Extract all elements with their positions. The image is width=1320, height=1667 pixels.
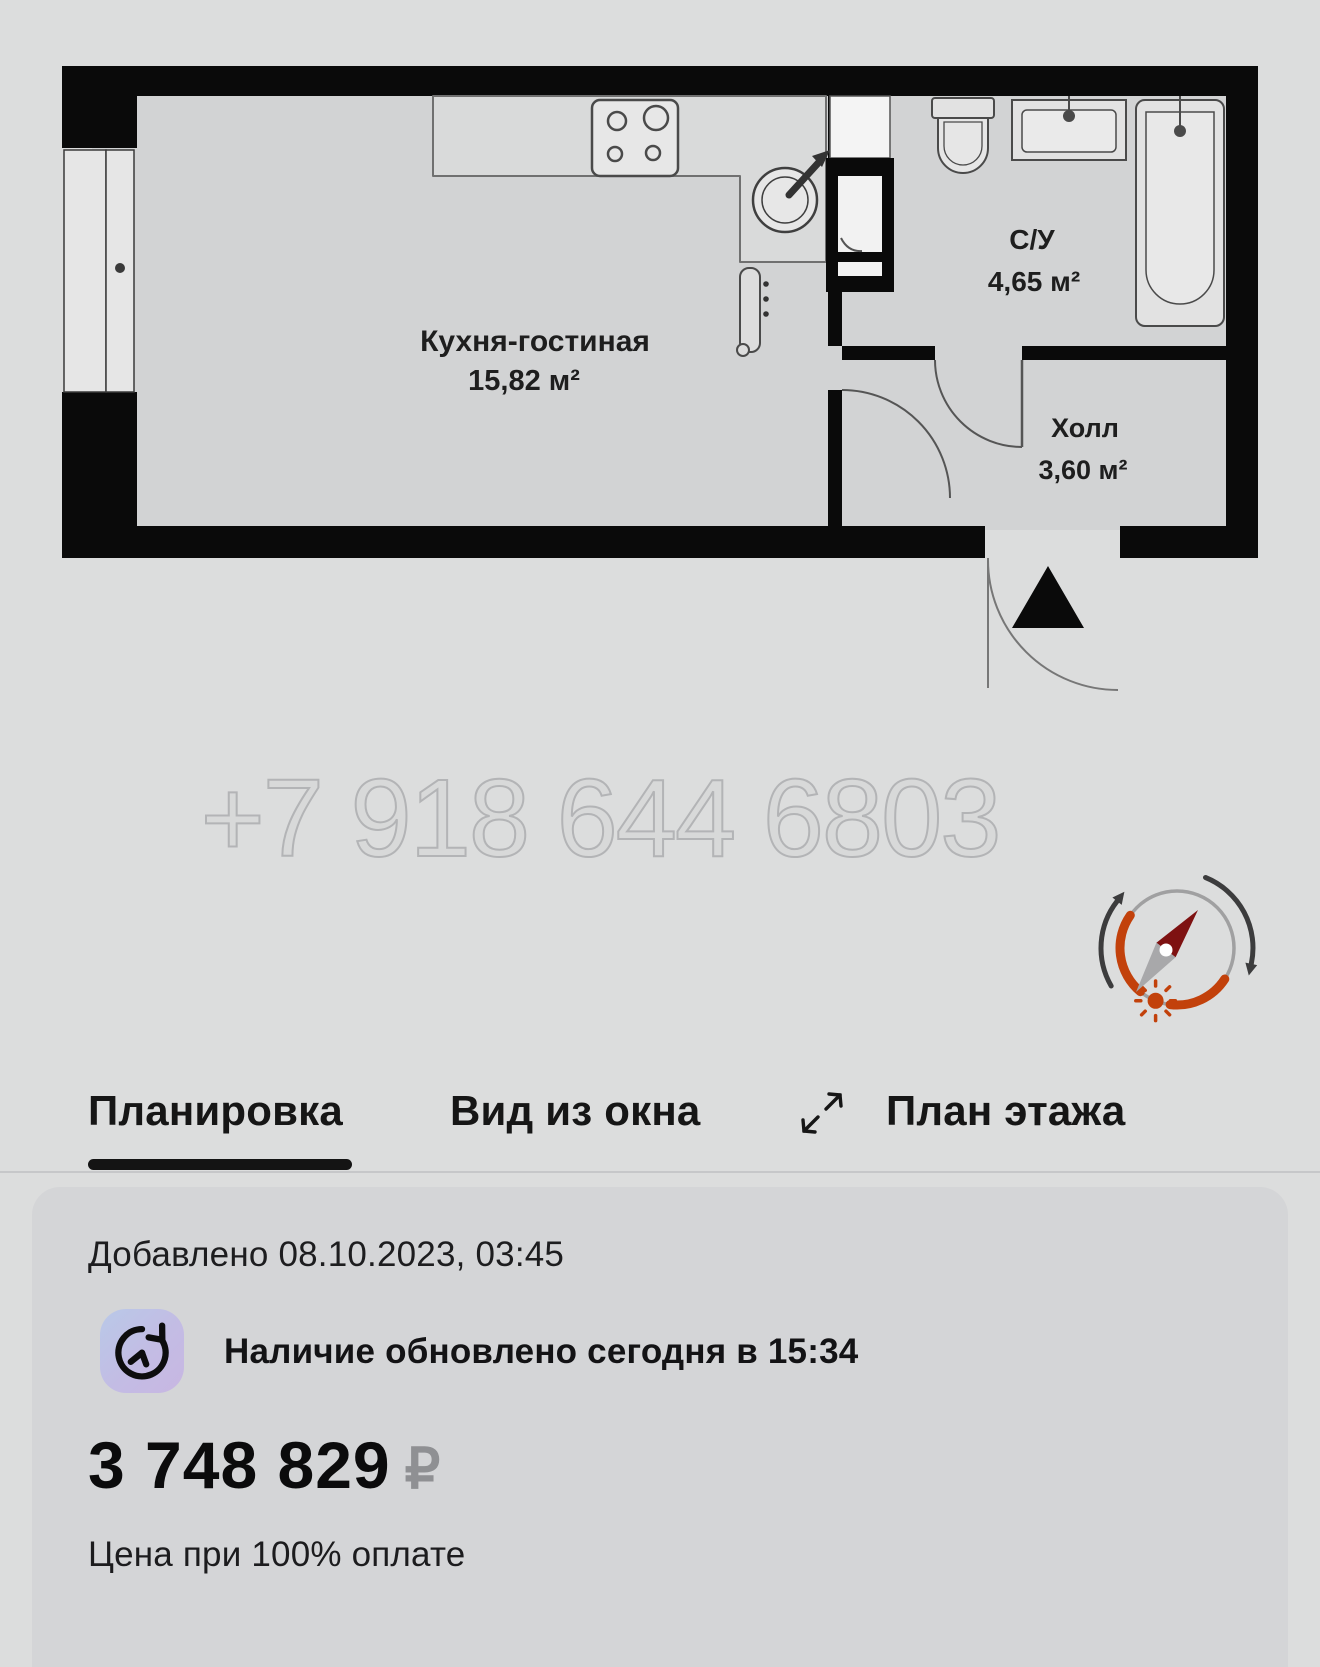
added-date-text: Добавлено 08.10.2023, 03:45 [88, 1235, 564, 1275]
entrance-arrow-icon [1012, 566, 1084, 628]
expand-icon[interactable] [795, 1086, 849, 1140]
compass-needle-icon [1136, 910, 1198, 992]
price-info-card: Добавлено 08.10.2023, 03:45 Наличие обно… [32, 1187, 1288, 1667]
window [64, 150, 134, 392]
room-name-hall: Холл [1051, 413, 1119, 443]
active-tab-underline [88, 1159, 352, 1170]
price-currency: ₽ [405, 1437, 441, 1500]
tabs-divider [0, 1171, 1320, 1173]
watermark-phone: +7 918 644 6803 [201, 757, 1000, 880]
availability-text: Наличие обновлено сегодня в 15:34 [224, 1332, 858, 1372]
stove-icon [592, 100, 678, 176]
room-area-hall: 3,60 м² [1038, 455, 1127, 485]
tab-plan-etazha[interactable]: План этажа [886, 1090, 1125, 1132]
listing-page: Кухня-гостиная 15,82 м² С/У 4,65 м² Холл… [0, 0, 1320, 1614]
room-name-bathroom: С/У [1009, 224, 1055, 255]
price-row: 3 748 829₽ [88, 1427, 440, 1503]
room-area-kitchen: 15,82 м² [468, 365, 580, 397]
bathtub-icon [1136, 96, 1224, 326]
room-area-bathroom: 4,65 м² [988, 266, 1080, 297]
compass-icon[interactable] [1101, 878, 1257, 1021]
room-name-kitchen: Кухня-гостиная [420, 325, 650, 358]
clock-refresh-icon [100, 1309, 184, 1393]
availability-badge [100, 1309, 184, 1393]
toilet-icon [932, 98, 994, 173]
entrance-door [988, 558, 1118, 690]
tab-planirovka[interactable]: Планировка [88, 1090, 343, 1132]
price-value: 3 748 829 [88, 1428, 391, 1502]
price-note: Цена при 100% оплате [88, 1535, 465, 1575]
duct [826, 96, 894, 292]
floor-plan-image: Кухня-гостиная 15,82 м² С/У 4,65 м² Холл… [0, 0, 1320, 1045]
tab-vid-iz-okna[interactable]: Вид из окна [450, 1090, 700, 1132]
bathroom-sink-icon [1012, 96, 1126, 160]
